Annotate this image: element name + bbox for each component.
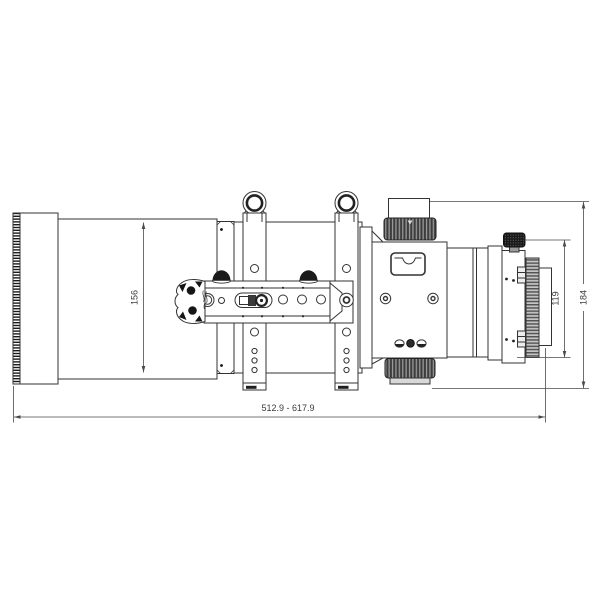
shoulder-setscrew-bottom [220,364,223,367]
front-knurled-strip [13,213,20,384]
rear-knurled-ring [526,258,539,358]
focus-knob-top [384,218,436,240]
focuser-tension-screws [395,340,426,348]
drawtube [447,248,488,357]
plate-end-clamp [175,280,207,324]
focuser-window [391,253,425,275]
drawtube-end-cap [488,246,502,360]
telescope-side-elevation: 156 119 184 512.9 - 617.9 [0,0,600,600]
technical-drawing-canvas: 156 119 184 512.9 - 617.9 [0,0,600,600]
dim-rear-height-label: 119 [551,291,561,305]
focuser-flange [360,227,372,368]
dim-overall-height-label: 184 [579,290,589,305]
dim-overall-length-label: 512.9 - 617.9 [261,403,314,413]
shoulder-setscrew-top [220,228,223,231]
fine-focus-knob-top [389,199,430,220]
adapter-clamp-bottom [518,331,526,347]
dim-tube-diameter-label: 156 [130,290,140,305]
thumbscrew [504,233,526,252]
dovetail-plate [201,281,353,323]
adapter-clamp-top [518,267,526,283]
rear-adapter-ring [539,268,552,346]
front-lens-cell [20,213,58,384]
focus-knob-bottom [385,359,435,385]
